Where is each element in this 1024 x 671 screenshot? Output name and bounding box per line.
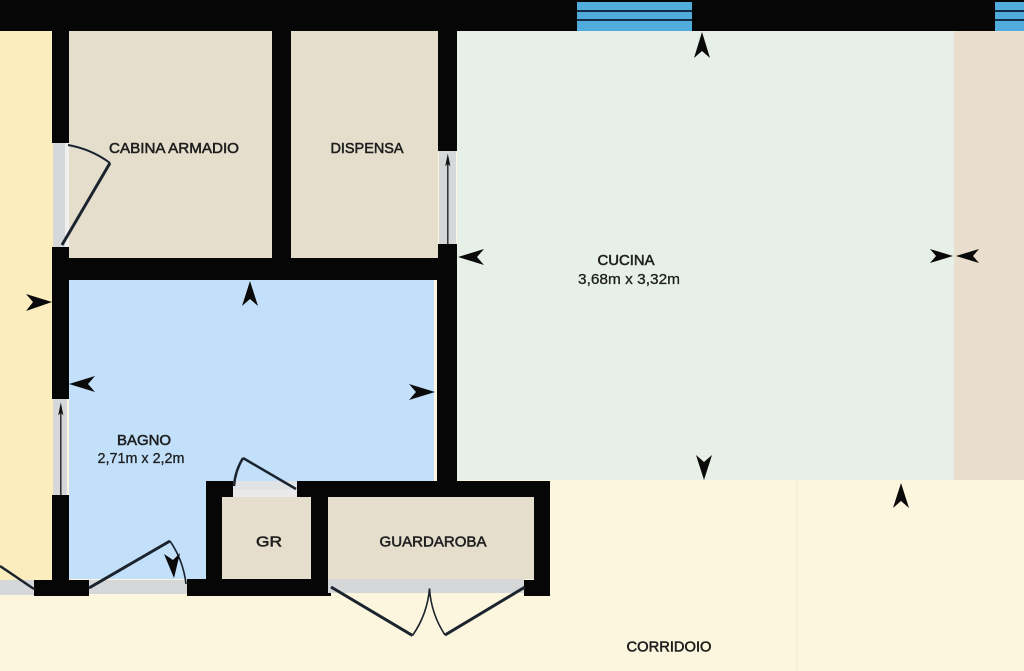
svg-text:DISPENSA: DISPENSA [331, 140, 404, 157]
svg-text:GUARDAROBA: GUARDAROBA [380, 534, 487, 551]
svg-text:CABINA ARMADIO: CABINA ARMADIO [109, 140, 239, 157]
svg-text:BAGNO: BAGNO [117, 432, 171, 449]
svg-text:CUCINA: CUCINA [598, 252, 655, 269]
svg-text:2,71m x 2,2m: 2,71m x 2,2m [98, 450, 185, 467]
svg-text:3,68m x 3,32m: 3,68m x 3,32m [578, 271, 680, 288]
svg-text:GR: GR [256, 534, 282, 551]
svg-text:CORRIDOIO: CORRIDOIO [627, 639, 712, 656]
